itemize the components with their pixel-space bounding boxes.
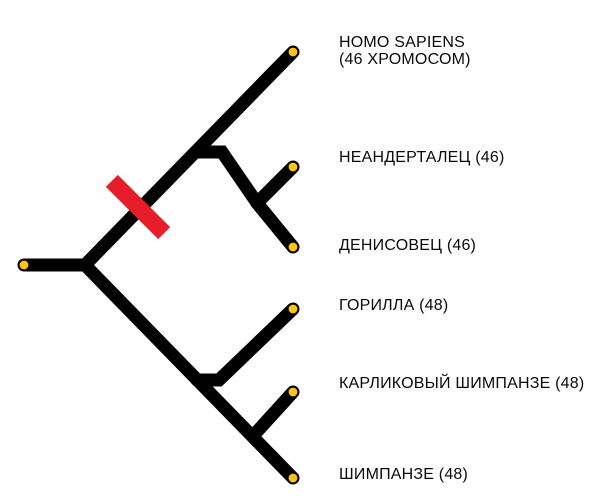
branch-neanderthal — [257, 167, 293, 203]
label-homo-sapiens-line2: (46 ХРОМОСОМ) — [339, 51, 471, 68]
label-chimpanzee: ШИМПАНЗЕ (48) — [339, 466, 468, 483]
label-denisovan: ДЕНИСОВЕЦ (46) — [339, 237, 476, 254]
labels-group: HOMO SAPIENS (46 ХРОМОСОМ) НЕАНДЕРТАЛЕЦ … — [339, 34, 584, 483]
tip-dot-neanderthal — [288, 162, 298, 172]
label-bonobo: КАРЛИКОВЫЙ ШИМПАНЗЕ (48) — [339, 373, 584, 392]
tip-dot-bonobo — [288, 387, 298, 397]
label-gorilla: ГОРИЛЛА (48) — [339, 297, 448, 314]
tip-dot-denisovan — [288, 242, 298, 252]
branch-gorilla — [197, 309, 293, 380]
label-homo-sapiens-line1: HOMO SAPIENS — [339, 34, 465, 51]
branch-chimpanzee — [85, 265, 293, 478]
root-dot — [19, 260, 29, 270]
phylogenetic-tree-diagram: HOMO SAPIENS (46 ХРОМОСОМ) НЕАНДЕРТАЛЕЦ … — [0, 0, 600, 504]
label-neanderthal: НЕАНДЕРТАЛЕЦ (46) — [339, 149, 505, 166]
tip-dot-chimpanzee — [288, 473, 298, 483]
tip-dot-gorilla — [288, 304, 298, 314]
branches-group — [24, 52, 293, 478]
tree-canvas: HOMO SAPIENS (46 ХРОМОСОМ) НЕАНДЕРТАЛЕЦ … — [0, 0, 600, 504]
branch-bonobo — [253, 392, 293, 436]
branch-archaic-humans — [196, 152, 257, 203]
branch-homo-sapiens — [85, 52, 293, 265]
tip-dot-homo-sapiens — [288, 47, 298, 57]
branch-denisovan — [257, 203, 293, 247]
